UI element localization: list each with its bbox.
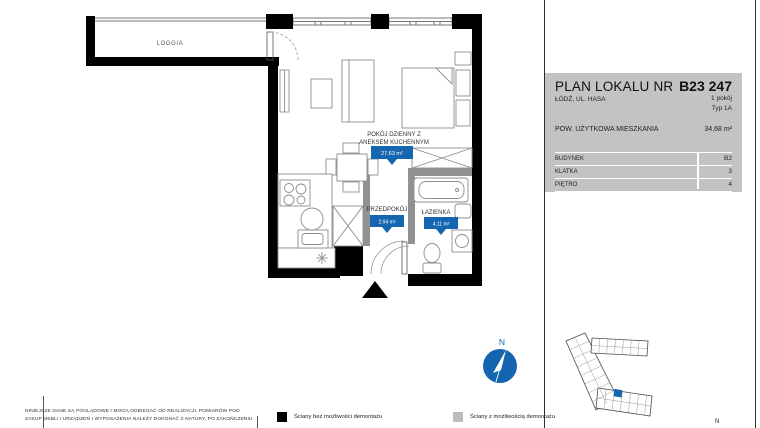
- disclaimer-line: NINIEJSZE DANE SĄ POGLĄDOWE I MOGĄ ODBIE…: [25, 408, 265, 416]
- balcony-door-leaf: [267, 32, 273, 60]
- wardrobe-hall: [333, 206, 363, 246]
- wall-segment: [408, 274, 482, 286]
- dining-table: [337, 154, 367, 181]
- round-sink: [301, 208, 323, 230]
- living-area-value: 27.63 m²: [381, 151, 403, 157]
- chair: [343, 143, 359, 153]
- wall-segment: [266, 14, 293, 29]
- wall-segment: [86, 57, 279, 66]
- hall-area-value: 2.94 m²: [379, 220, 396, 226]
- dining-set: [326, 143, 378, 192]
- disclaimer-text: NINIEJSZE DANE SĄ POGLĄDOWE I MOGĄ ODBIE…: [25, 408, 265, 423]
- entrance-arrow: [362, 281, 388, 298]
- loggia-railing: [95, 18, 266, 21]
- toilet: [424, 244, 440, 263]
- wall-segment: [472, 14, 482, 286]
- building-minimap: N: [545, 0, 760, 428]
- entrance-door-swing: [371, 241, 404, 274]
- pillow: [456, 100, 470, 126]
- wall-shaft-column: [334, 246, 363, 276]
- floor-plan-drawing: LOGGIA POKÓJ DZIENNY Z ANEKSEM KUCHENNYM…: [0, 0, 545, 428]
- compass-north-label: N: [499, 337, 505, 347]
- minimap-highlighted-unit: [614, 389, 623, 398]
- legend-label: Ściany bez możliwości demontażu: [294, 414, 382, 420]
- minimap-north-label: N: [715, 419, 719, 425]
- bed: [402, 52, 471, 128]
- washbasin: [455, 204, 471, 218]
- legend-label: Ściany z możliwością demontażu: [470, 414, 555, 420]
- hall-area-badge: 2.94 m²: [370, 215, 404, 233]
- living-room-label-line1: POKÓJ DZIENNY Z: [367, 131, 421, 138]
- furniture: [278, 52, 472, 273]
- loggia-label: LOGGIA: [157, 41, 184, 47]
- legend-item-solid-walls: Ściany bez możliwości demontażu: [277, 412, 382, 422]
- legend-item-demountable-walls: Ściany z możliwością demontażu: [453, 412, 555, 422]
- nightstand: [455, 52, 471, 65]
- balcony-door-swing: [270, 32, 298, 60]
- disclaimer-line: ZAKUP MEBLI I URZĄDZEŃ I WYPOSAŻENIA NAL…: [25, 416, 265, 424]
- chair: [343, 182, 359, 192]
- pillow: [456, 70, 470, 96]
- right-border-line: [755, 0, 756, 428]
- hall-label: PRZEDPOKÓJ: [367, 206, 408, 213]
- panel-divider-line: [544, 0, 545, 428]
- chair: [326, 159, 336, 175]
- compass: N: [483, 337, 517, 383]
- wall-segment: [278, 268, 340, 278]
- coffee-table: [311, 79, 332, 108]
- wall-segment: [371, 14, 389, 29]
- radiator: [280, 70, 289, 112]
- bathroom-label: ŁAZIENKA: [421, 210, 450, 216]
- chair: [368, 159, 378, 175]
- living-room-label-line2: ANEKSEM KUCHENNYM: [359, 140, 429, 146]
- wall-segment-demountable: [408, 168, 472, 176]
- solid-wall-swatch: [277, 412, 287, 422]
- demountable-wall-swatch: [453, 412, 463, 422]
- wardrobe: [412, 148, 472, 168]
- wall-segment: [268, 60, 278, 278]
- sofa: [342, 60, 374, 122]
- bathroom-area-value: 4.11 m²: [433, 222, 450, 228]
- floor-plan-sheet: { "panel": { "title": "PLAN LOKALU NR", …: [0, 0, 760, 428]
- kitchen-annex: [278, 174, 335, 268]
